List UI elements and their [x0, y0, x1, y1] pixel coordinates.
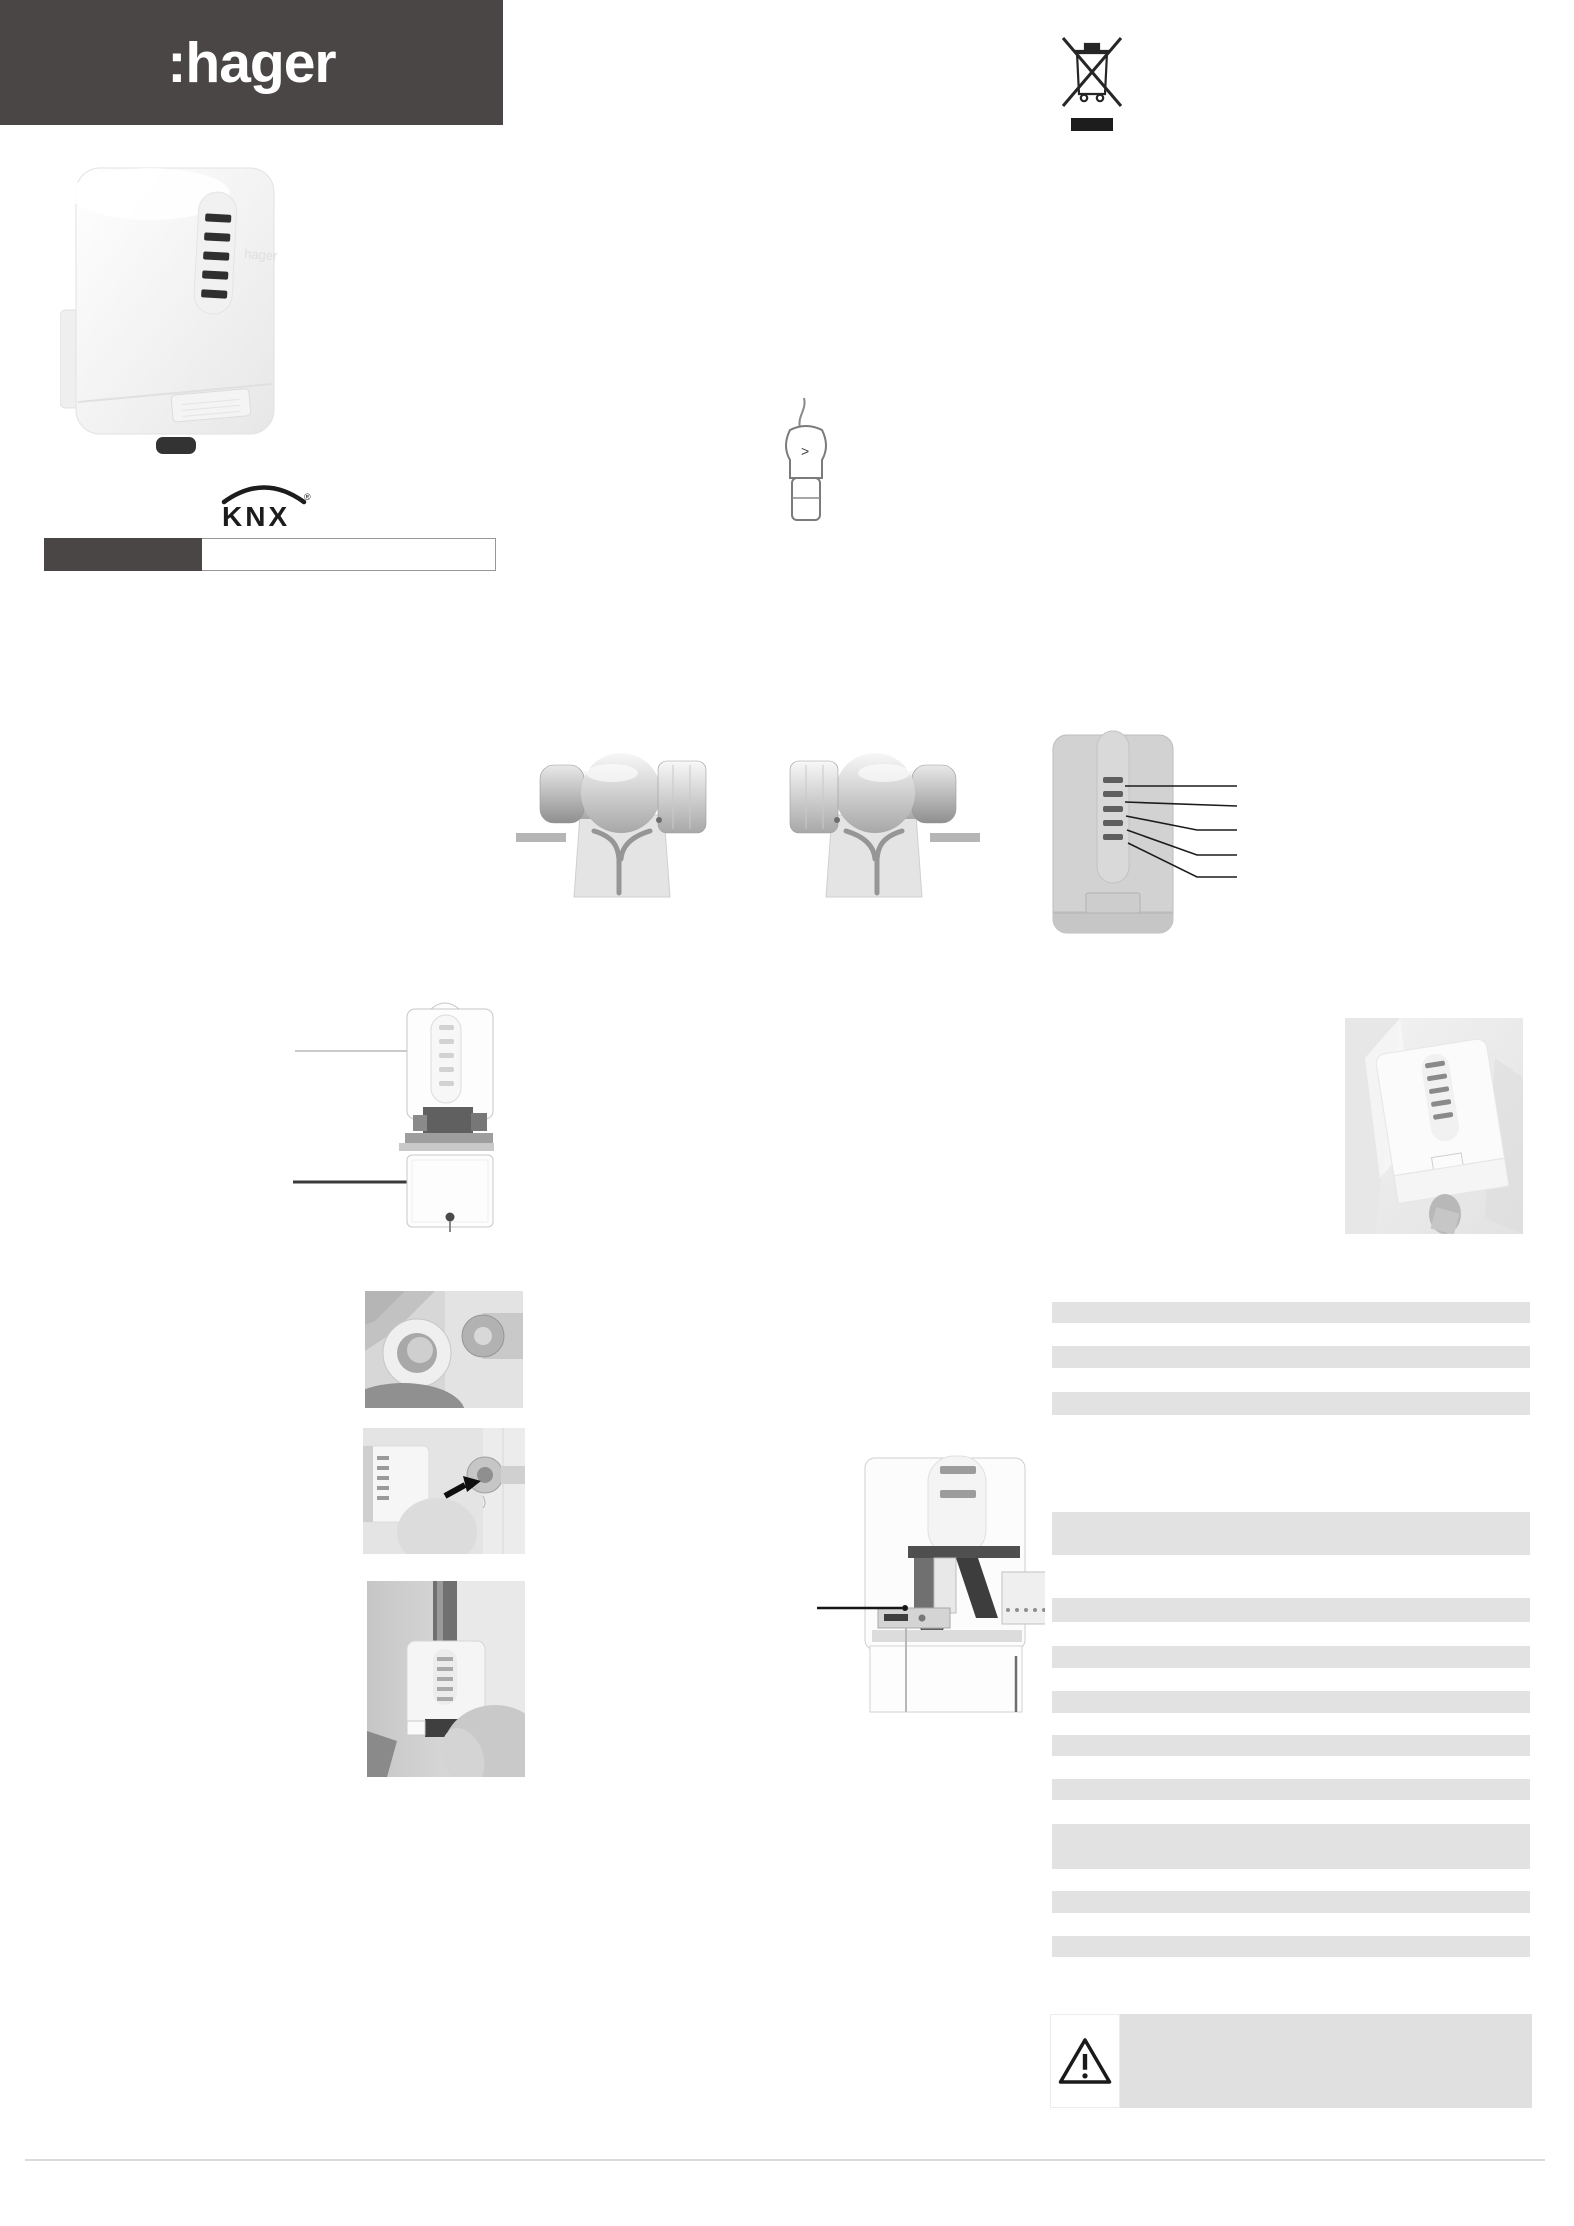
redacted-text-line: [1052, 1779, 1530, 1800]
photo-device-on-radiator: [1345, 1018, 1523, 1234]
photo-mounting-device: [363, 1428, 525, 1554]
screen-glyph: >: [801, 443, 809, 459]
weee-bar: [1071, 118, 1113, 131]
bottom-knob: [156, 437, 196, 454]
warning-triangle-icon: [1057, 2036, 1113, 2086]
photo-tightening-device: [367, 1581, 525, 1777]
knx-text: KNX: [222, 501, 290, 530]
redacted-text-line: [1052, 1512, 1530, 1555]
redacted-text-line: [1052, 1346, 1530, 1368]
handheld-programmer-icon: >: [778, 394, 834, 526]
product-photo-actuator: hager: [60, 160, 290, 460]
redacted-text-line: [1052, 1392, 1530, 1415]
footer-divider-line: [25, 2159, 1545, 2161]
knx-logo: KNX ®: [216, 482, 312, 530]
two-tone-bar: [44, 538, 496, 571]
device-face-print: hager: [244, 246, 279, 263]
photo-adapter-ring: [365, 1291, 523, 1408]
pipe: [433, 1581, 457, 1647]
mounted-device: [1375, 1038, 1509, 1204]
redacted-text-line: [1052, 1598, 1530, 1622]
device-cutaway-diagram: [810, 1450, 1045, 1720]
brand-header-bar: :hager: [0, 0, 503, 125]
two-tone-bar-empty: [202, 538, 496, 571]
redacted-text-line: [1052, 1691, 1530, 1713]
redacted-text-line: [1052, 1735, 1530, 1756]
redacted-text-line: [1052, 1891, 1530, 1913]
redacted-text-line: [1052, 1302, 1530, 1323]
knx-registered-mark: ®: [304, 492, 311, 502]
led-channel: [193, 191, 237, 315]
warning-redacted-text: [1120, 2014, 1532, 2108]
valve-illustration-right: [782, 745, 994, 905]
warning-note: [1050, 2014, 1532, 2108]
device-exploded-diagram: [285, 995, 500, 1240]
redacted-text-line: [1052, 1824, 1530, 1869]
knx-arc: [224, 488, 304, 503]
hager-logo: :hager: [167, 30, 335, 96]
redacted-text-line: [1052, 1646, 1530, 1668]
redacted-text-line: [1052, 1936, 1530, 1957]
warning-icon-box: [1050, 2014, 1120, 2108]
antenna: [799, 398, 804, 428]
device-front-view-diagram: [1040, 725, 1250, 940]
instruction-sheet-page: :hager: [0, 0, 1574, 2226]
valve-illustration-left: [502, 745, 714, 905]
weee-icon: [1060, 36, 1124, 140]
valve-body: [790, 753, 980, 897]
valve-body: [516, 753, 706, 897]
two-tone-bar-filled: [44, 538, 202, 571]
